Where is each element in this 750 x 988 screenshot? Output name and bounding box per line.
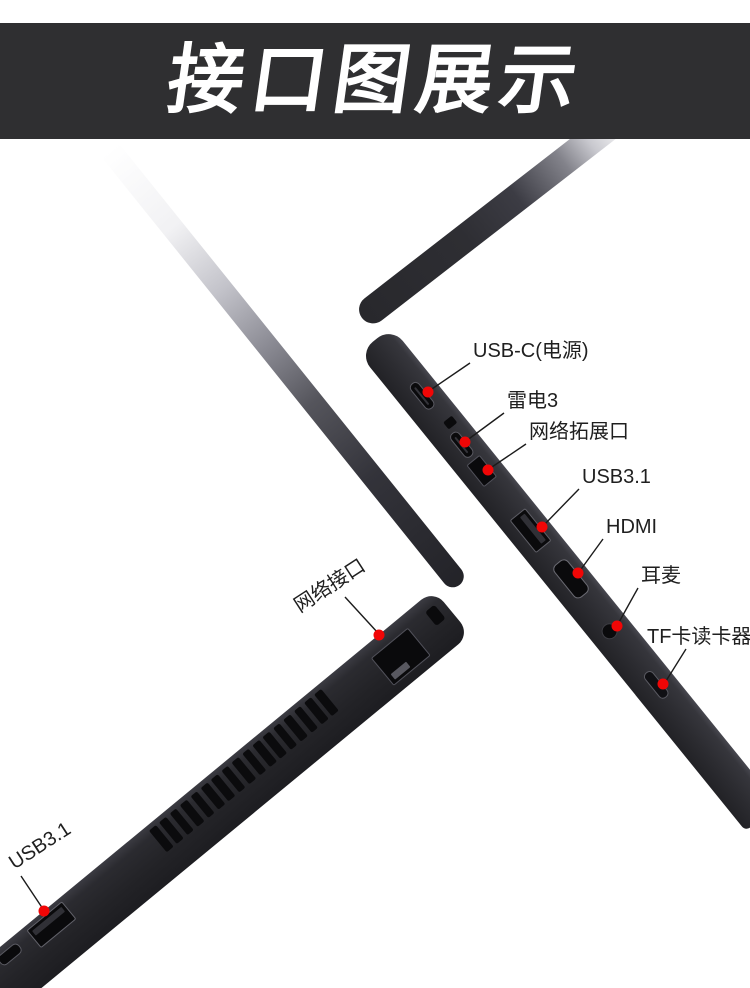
hdmi-port-icon xyxy=(551,557,591,601)
callout-label-hdmi: HDMI xyxy=(606,516,657,538)
callout-label-tf-card-reader: TF卡读卡器 xyxy=(647,626,750,648)
callout-label-usb-c-power: USB-C(电源) xyxy=(473,340,589,362)
callout-label-headset: 耳麦 xyxy=(641,565,681,587)
right-laptop-lid xyxy=(353,107,629,330)
callout-dot-usb31-left xyxy=(39,906,50,917)
ethernet-flap xyxy=(391,662,411,680)
callout-dot-thunderbolt3 xyxy=(460,437,471,448)
product-port-diagram: 接口图展示 USB-C(电源)雷电3网络拓展口USB3.1HDMI耳麦TF卡读卡… xyxy=(0,0,750,988)
callout-dot-usb31-right xyxy=(537,522,548,533)
callout-dot-hdmi xyxy=(573,568,584,579)
edge-slot-icon xyxy=(0,942,24,968)
callout-label-network-expansion: 网络拓展口 xyxy=(529,421,629,443)
callout-dot-usb-c-power xyxy=(423,387,434,398)
usb-a-port-icon xyxy=(26,901,76,948)
kensington-lock-slot-icon xyxy=(425,605,446,627)
callout-label-ethernet: 网络接口 xyxy=(290,555,369,617)
callout-dot-ethernet xyxy=(374,630,385,641)
callout-label-thunderbolt3: 雷电3 xyxy=(507,390,558,412)
left-laptop-edge xyxy=(0,590,470,988)
header-banner: 接口图展示 xyxy=(0,23,750,139)
callout-line-usb31-left xyxy=(21,876,43,909)
callout-dot-tf-card-reader xyxy=(658,679,669,690)
port-nub xyxy=(443,416,457,430)
usb-c-port-icon xyxy=(408,380,437,412)
callout-label-usb31-right: USB3.1 xyxy=(582,466,651,488)
callout-label-usb31-left: USB3.1 xyxy=(5,818,75,874)
callout-dot-headset xyxy=(612,621,623,632)
callout-dot-network-expansion xyxy=(483,465,494,476)
callout-line-ethernet xyxy=(345,597,378,633)
page-title: 接口图展示 xyxy=(162,43,588,119)
